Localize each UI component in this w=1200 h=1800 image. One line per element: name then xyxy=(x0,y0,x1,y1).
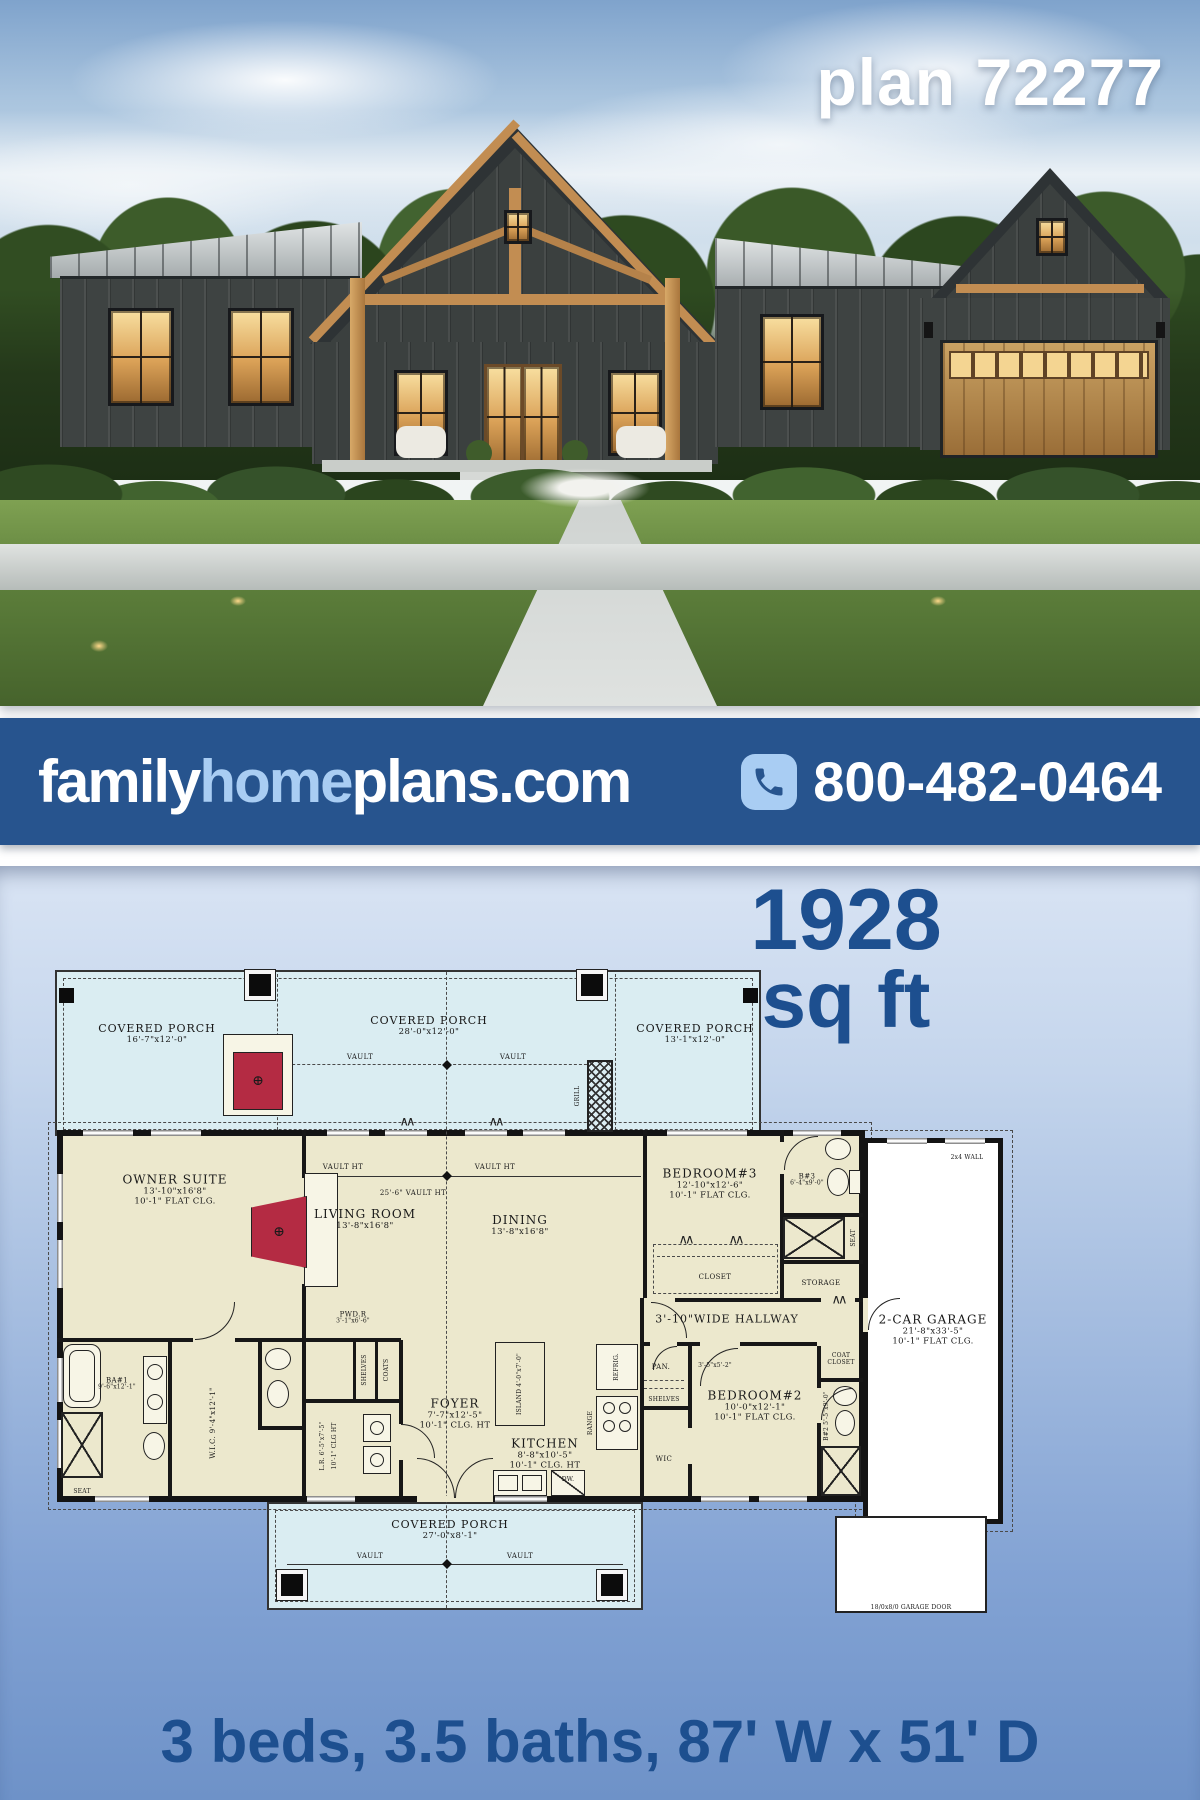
toilet-icon xyxy=(267,1380,289,1408)
wall xyxy=(780,1260,863,1264)
coat-closet-label: COATCLOSET xyxy=(827,1353,854,1367)
vault-line xyxy=(308,1176,641,1177)
room-label-bath1: BA#19'-6"x12'-1" xyxy=(98,1377,136,1392)
window-marker xyxy=(385,1130,427,1136)
folding-door-icon: ∧∧ xyxy=(399,1115,412,1130)
house-plan-pin: plan 72277 familyhomeplans.com 800-482-0… xyxy=(0,0,1200,1800)
window-marker xyxy=(495,1496,547,1502)
porch-post xyxy=(245,970,275,1000)
garage-gable-window xyxy=(1036,218,1068,256)
logo-plans: plans.com xyxy=(351,748,630,815)
folding-door-icon: ∧∧ xyxy=(678,1233,691,1248)
wall xyxy=(817,1378,863,1382)
phone-icon xyxy=(741,754,797,810)
logo-home: home xyxy=(199,748,351,815)
wall xyxy=(688,1342,692,1428)
path-light xyxy=(90,640,108,652)
dryer-drum xyxy=(370,1453,384,1467)
window-marker xyxy=(307,1496,355,1502)
wall xyxy=(643,1130,647,1298)
burner xyxy=(603,1402,615,1414)
dishwasher-label: DW. xyxy=(562,1476,574,1483)
top-porch xyxy=(55,970,761,1136)
window-marker xyxy=(887,1138,927,1144)
wall xyxy=(688,1464,692,1498)
burner xyxy=(603,1420,615,1432)
vault-line xyxy=(287,1564,623,1565)
porch-post-left xyxy=(350,278,365,466)
laundry-clg-label: 10'-1" CLG HT xyxy=(331,1423,338,1470)
burner xyxy=(619,1420,631,1432)
hero-photo: plan 72277 xyxy=(0,0,1200,706)
hallway-label: 3'-10"WIDE HALLWAY xyxy=(655,1314,799,1327)
ridge-line xyxy=(615,974,616,1130)
shelves-label: SHELVES xyxy=(361,1354,368,1385)
room-label-foyer: FOYER7'-7"x12'-5"10'-1" CLG. HT xyxy=(420,1397,491,1430)
porch-post xyxy=(743,988,758,1003)
window-marker xyxy=(83,1130,133,1136)
wall xyxy=(399,1340,403,1424)
pantry-label: PAN. xyxy=(652,1363,671,1371)
path-light xyxy=(230,596,246,606)
folding-door-icon: ∧∧ xyxy=(831,1293,844,1308)
garage-door xyxy=(940,340,1158,458)
wall xyxy=(302,1340,306,1498)
wall xyxy=(677,1342,700,1346)
wic2-label: WIC xyxy=(656,1455,673,1463)
window-marker xyxy=(759,1496,807,1502)
garage-door-windows xyxy=(949,351,1149,379)
closet-label: CLOSET xyxy=(699,1273,732,1281)
window-marker xyxy=(465,1130,507,1136)
phone-number: 800-482-0464 xyxy=(813,749,1162,814)
window xyxy=(108,308,174,406)
wall xyxy=(640,1406,688,1410)
wall xyxy=(399,1460,403,1498)
room-label-bedroom3: BEDROOM#312'-10"x12'-6"10'-1" FLAT CLG. xyxy=(663,1167,758,1200)
room-label-porch-bottom: COVERED PORCH27'-0"x8'-1" xyxy=(391,1519,509,1541)
shelf-line xyxy=(644,1380,684,1381)
vault-label: VAULT xyxy=(347,1053,373,1061)
site-banner: familyhomeplans.com 800-482-0464 xyxy=(0,718,1200,845)
wall xyxy=(740,1342,817,1346)
sink-icon xyxy=(265,1348,291,1370)
gable-window xyxy=(504,210,532,244)
room-label-porch-mid: COVERED PORCH28'-0"x12'-0" xyxy=(370,1015,488,1037)
toilet-icon xyxy=(827,1168,849,1196)
room-label-living: LIVING ROOM13'-8"x16'8" xyxy=(314,1208,416,1232)
window-marker xyxy=(945,1138,985,1144)
porch-edge-dashes xyxy=(63,978,753,1130)
coats-label: COATS xyxy=(383,1359,390,1382)
wall xyxy=(675,1298,821,1302)
sink-icon xyxy=(825,1138,851,1160)
pantry-dims: 3'-5"x5'-2" xyxy=(698,1362,732,1369)
bath2-label: B#2 5'-5"x9'-0" xyxy=(823,1391,830,1441)
seat-label: SEAT xyxy=(73,1488,90,1495)
window xyxy=(760,314,824,410)
flower-bed xyxy=(520,468,650,508)
wall xyxy=(57,1338,193,1342)
garage-timber-beam xyxy=(956,284,1144,293)
vault-ht-label: VAULT HT xyxy=(475,1163,515,1171)
garage-door-label: 18/0x8/0 GARAGE DOOR xyxy=(871,1604,952,1611)
lantern xyxy=(924,322,933,338)
wall xyxy=(258,1426,306,1430)
vault-line xyxy=(267,1064,597,1065)
wall xyxy=(780,1130,784,1142)
toilet-tank xyxy=(849,1170,861,1194)
sqft-value: 1928 xyxy=(726,880,966,962)
room-label-dining: DINING13'-8"x16'8" xyxy=(491,1214,548,1238)
closet-shelf-line xyxy=(657,1256,775,1257)
window-marker xyxy=(523,1130,565,1136)
site-logo: familyhomeplans.com xyxy=(38,747,630,816)
floorplan-section: 1928 sq ft 18/0x8/0 GARAGE DOOR xyxy=(0,866,1200,1800)
range-label: RANGE xyxy=(587,1411,594,1435)
vault-label: VAULT xyxy=(357,1552,383,1560)
room-label-bedroom2: BEDROOM#210'-0"x12'-1"10'-1" FLAT CLG. xyxy=(708,1389,803,1422)
wall xyxy=(304,1399,399,1403)
refrigerator-label: REFRIG. xyxy=(613,1353,620,1381)
room-label-powder: PWD.R3'-1"x6'-6" xyxy=(336,1311,370,1326)
wall xyxy=(168,1342,172,1498)
seat-label: SEAT xyxy=(850,1229,857,1246)
window xyxy=(228,308,294,406)
window-marker xyxy=(701,1496,749,1502)
shower-icon xyxy=(61,1412,103,1478)
storage-label: STORAGE xyxy=(801,1279,840,1287)
pantry-shelves-label: SHELVES xyxy=(648,1396,679,1403)
room-label-garage: 2-CAR GARAGE21'-8"x33'-5"10'-1" FLAT CLG… xyxy=(879,1313,988,1346)
cross-walkway xyxy=(0,544,1200,590)
range-icon xyxy=(596,1396,638,1450)
wall xyxy=(302,1284,306,1340)
sink-icon xyxy=(147,1364,163,1380)
vault-span-label: 25'-6" VAULT HT xyxy=(380,1189,446,1197)
room-label-bath3: B#36'-4"x9'-0" xyxy=(790,1173,824,1188)
porch-post xyxy=(597,1570,627,1600)
porch-post xyxy=(577,970,607,1000)
lantern xyxy=(1156,322,1165,338)
grill-label: GRILL xyxy=(574,1086,581,1107)
room-label-porch-right: COVERED PORCH13'-1"x12'-0" xyxy=(636,1023,754,1045)
floorplan-drawing: 18/0x8/0 GARAGE DOOR COVERED PORCH16'-7"… xyxy=(55,968,1005,1628)
shower-icon xyxy=(821,1446,861,1496)
fireplace-icon: ⊕ xyxy=(251,1196,307,1268)
right-wing-roof xyxy=(715,238,967,290)
wall xyxy=(640,1298,644,1498)
toilet-icon xyxy=(143,1432,165,1460)
room-label-porch-left: COVERED PORCH16'-7"x12'-0" xyxy=(98,1023,216,1045)
tub-icon xyxy=(63,1344,101,1408)
wall-note: 2x4 WALL xyxy=(951,1154,984,1161)
vault-label: VAULT xyxy=(507,1552,533,1560)
porch-post-right xyxy=(665,278,680,466)
phone-block: 800-482-0464 xyxy=(741,749,1162,814)
porch-post xyxy=(277,1570,307,1600)
wall xyxy=(640,1342,650,1346)
plan-tagline: 3 beds, 3.5 baths, 87' W x 51' D xyxy=(0,1707,1200,1776)
wall xyxy=(235,1338,306,1342)
wall xyxy=(302,1130,306,1178)
washer-drum xyxy=(370,1421,384,1435)
shower-icon xyxy=(783,1217,845,1259)
window-marker xyxy=(667,1130,747,1136)
sink-icon xyxy=(147,1394,163,1410)
burner xyxy=(619,1402,631,1414)
kitchen-sink-icon xyxy=(493,1470,547,1496)
island-label: ISLAND 4'-0"x7'-0" xyxy=(516,1353,523,1415)
wic1-label: W.I.C. 9'-4"x12'-1" xyxy=(209,1387,217,1459)
grill-icon xyxy=(587,1060,613,1132)
folding-door-icon: ∧∧ xyxy=(488,1115,501,1130)
window-marker xyxy=(151,1130,201,1136)
vault-label: VAULT xyxy=(500,1053,526,1061)
window-marker xyxy=(327,1130,369,1136)
window-marker xyxy=(57,1174,63,1222)
vault-ht-label: VAULT HT xyxy=(323,1163,363,1171)
path-light xyxy=(930,596,946,606)
room-label-kitchen: KITCHEN8'-8"x10'-5"10'-1" CLG. HT xyxy=(510,1437,581,1470)
logo-family: family xyxy=(38,748,199,815)
left-wing-roof xyxy=(50,222,362,278)
plan-number: plan 72277 xyxy=(816,44,1164,120)
fireplace-icon: ⊕ xyxy=(233,1052,283,1110)
porch-post xyxy=(59,988,74,1003)
wall xyxy=(258,1342,262,1428)
folding-door-icon: ∧∧ xyxy=(728,1233,741,1248)
room-label-owner-suite: OWNER SUITE13'-10"x16'8"10'-1" FLAT CLG. xyxy=(122,1173,227,1206)
window-marker xyxy=(57,1240,63,1288)
window-marker xyxy=(95,1496,149,1502)
